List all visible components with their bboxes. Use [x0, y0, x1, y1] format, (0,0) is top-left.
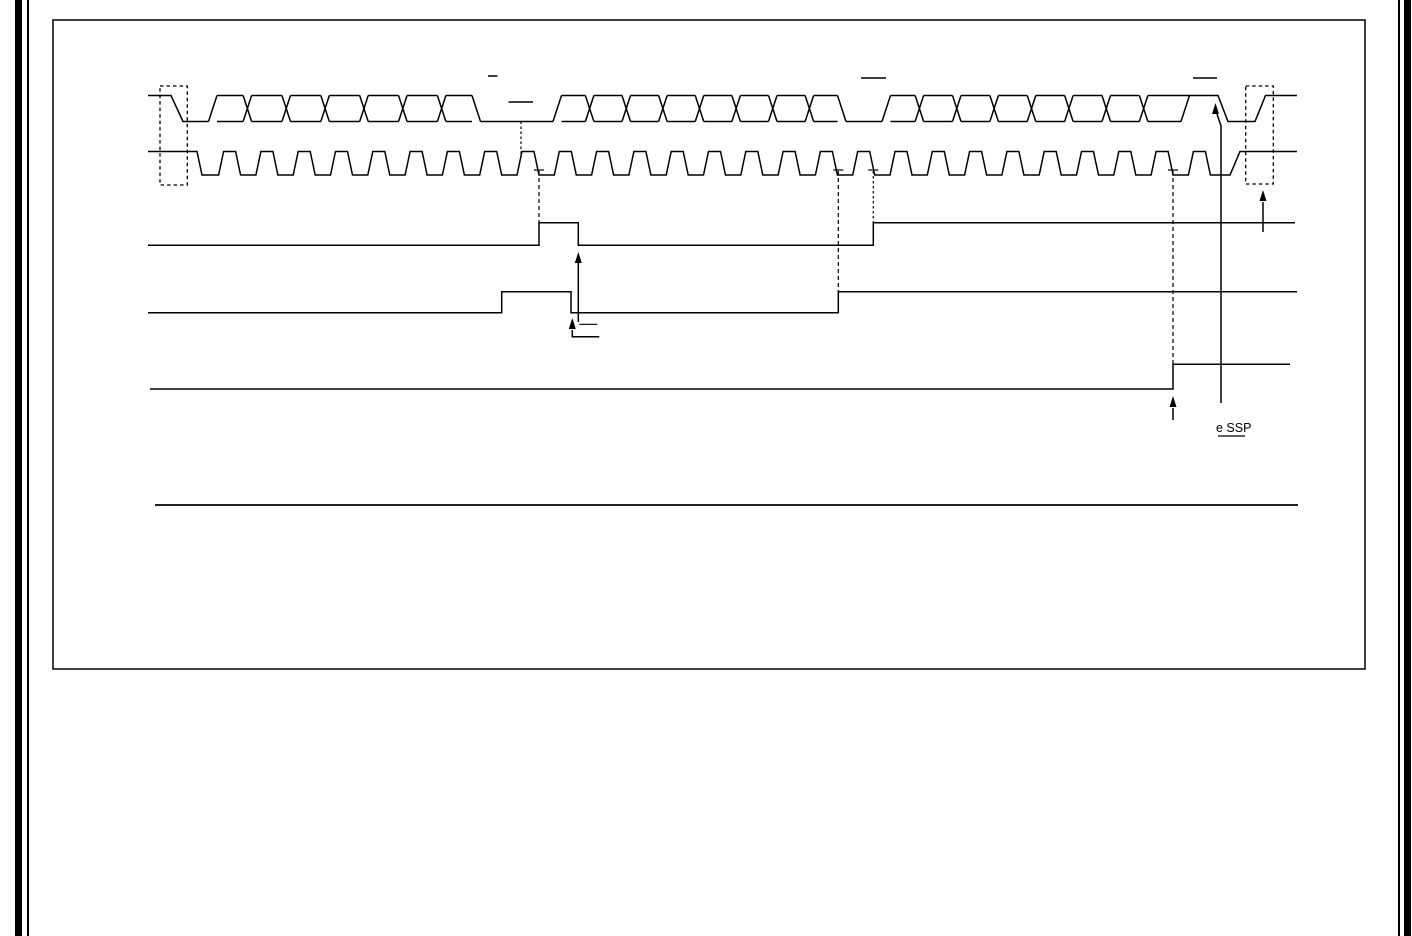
essp-label: e SSP: [1216, 421, 1251, 436]
status-signal-1: [148, 223, 1295, 246]
timing-diagram-figure: e SSP: [0, 0, 1412, 936]
stop-condition-box: [1246, 86, 1274, 184]
status-signal-2: [148, 292, 1297, 313]
datasheet-page: e SSP: [0, 0, 1412, 936]
scl-clock-waveform: [148, 152, 1297, 176]
page-side-borders: [15, 0, 1411, 936]
svg-text:e SSP: e SSP: [1216, 421, 1251, 435]
overbar-marks: [488, 76, 1217, 102]
sda-data-waveform: [148, 96, 1297, 122]
annotation-arrows: [569, 103, 1267, 420]
status-signal-3: [150, 364, 1290, 389]
